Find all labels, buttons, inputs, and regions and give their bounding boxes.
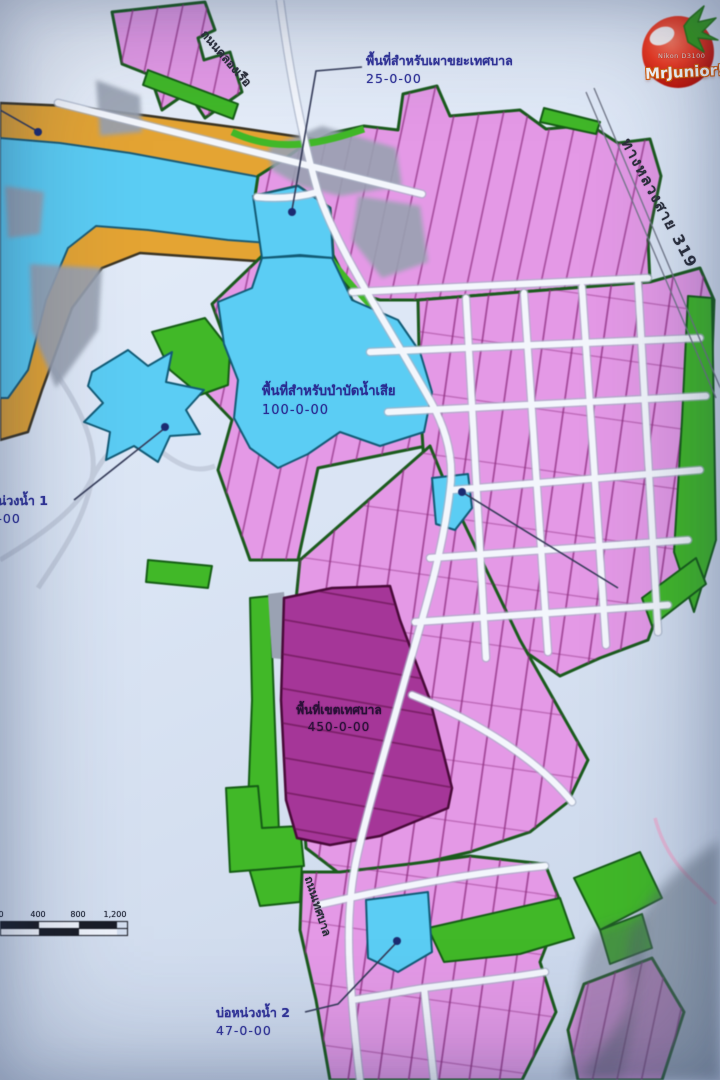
scale-label-1200: 1,200 [104,910,127,919]
watermark-name-text: MrJunior! [645,61,720,83]
label-wastewater: พื้นที่สำหรับบำบัดน้ำเสีย 100-0-00 [262,383,396,421]
label-wastewater-text: พื้นที่สำหรับบำบัดน้ำเสีย [262,383,396,402]
label-pond-2: บ่อหน่วงน้ำ 2 47-0-00 [216,1004,290,1040]
label-pond-2-area: 47-0-00 [216,1022,290,1040]
label-municipal-zone-area: 450-0-00 [272,719,406,736]
label-municipal-zone: พื้นที่เขตเทศบาล 450-0-00 [272,702,406,737]
label-pond-1: บ่อหน่วงน้ำ 1 7-0-00 [0,492,48,528]
scale-label-400: 400 [30,910,45,919]
scale-bar: 0 400 800 1,200 [0,910,128,936]
watermark-camera-text: Nikon D3100 [658,52,705,60]
label-waste-incinerator-area: 25-0-00 [366,70,513,88]
label-wastewater-area: 100-0-00 [262,402,396,421]
label-waste-incinerator-text: พื้นที่สำหรับเผาขยะเทศบาล [366,52,513,70]
scale-label-0: 0 [0,910,4,919]
label-pond-2-text: บ่อหน่วงน้ำ 2 [216,1004,290,1022]
label-pond-1-text: บ่อหน่วงน้ำ 1 [0,492,48,510]
scale-label-800: 800 [70,910,85,919]
label-waste-incinerator: พื้นที่สำหรับเผาขยะเทศบาล 25-0-00 [366,52,513,88]
watermark: Nikon D3100 MrJunior! [633,0,720,92]
scale-bar-rows [0,921,128,936]
map-photo: พื้นที่สำหรับเผาขยะเทศบาล 25-0-00 พื้นที… [0,0,720,1080]
label-municipal-zone-text: พื้นที่เขตเทศบาล [272,702,406,719]
scale-bar-numbers: 0 400 800 1,200 [0,910,128,921]
label-pond-1-area: 7-0-00 [0,510,48,528]
